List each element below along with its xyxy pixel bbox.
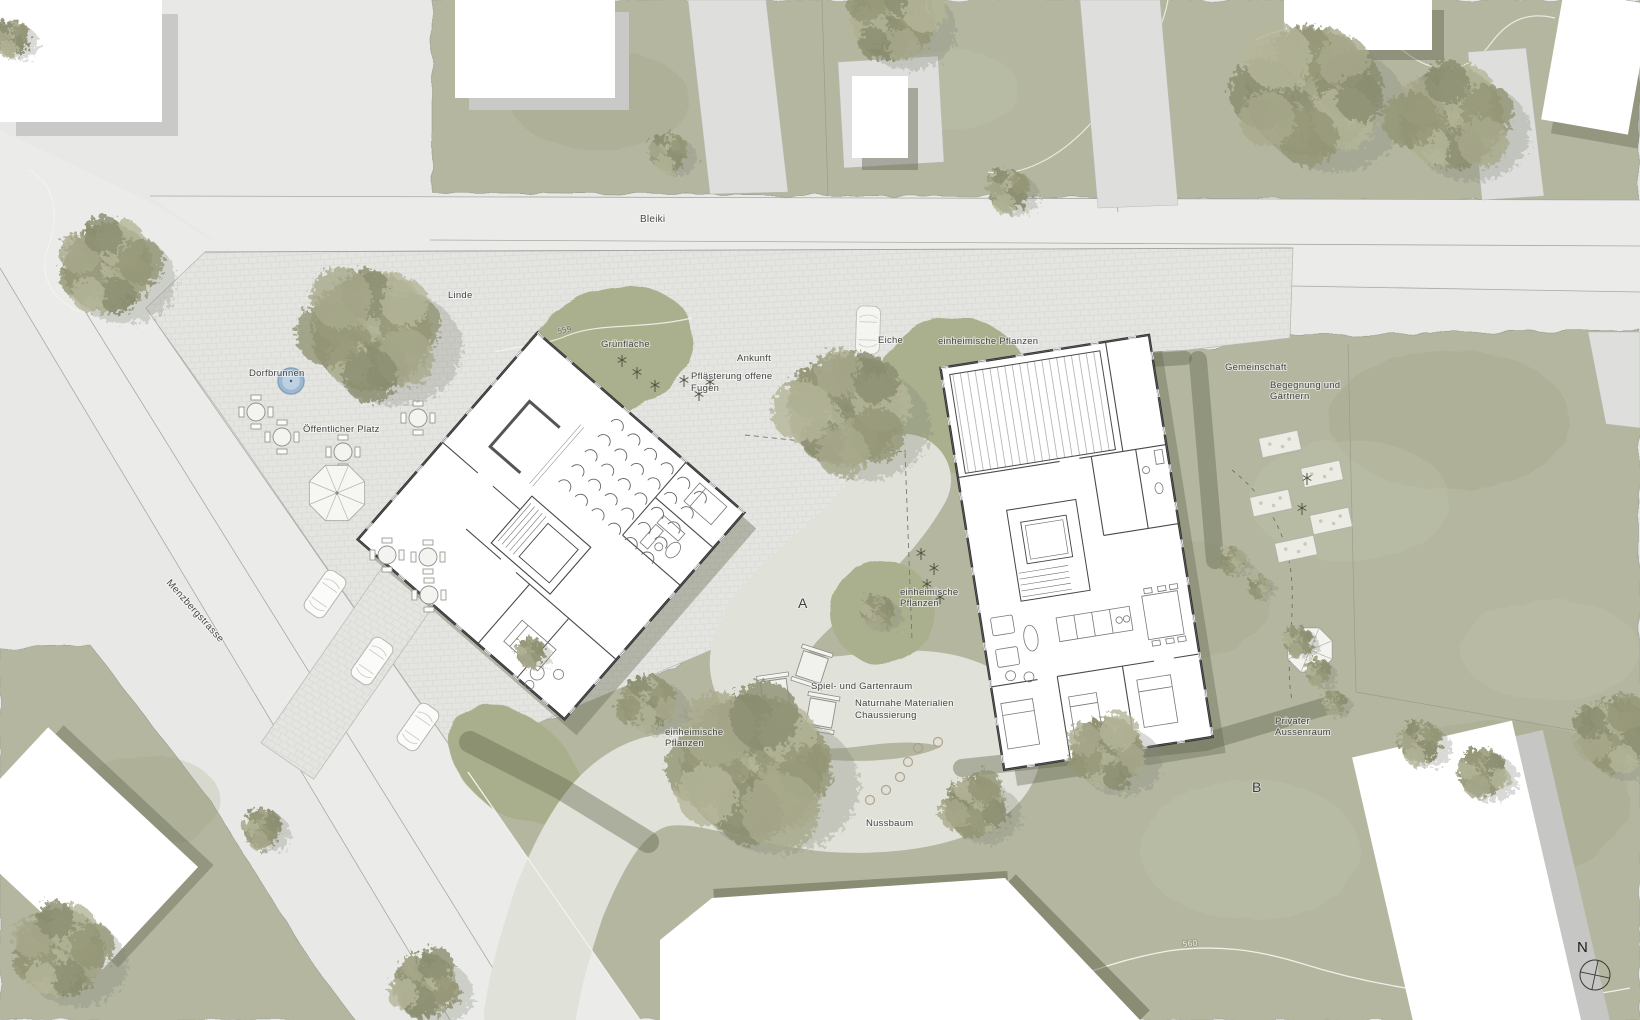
label-privater-2: Aussenraum [1275,727,1331,738]
label-privater-1: Privater [1275,716,1310,727]
site-plan-page: Bleiki Linde 559 Grünfläche Ankunft Pflä… [0,0,1640,1020]
context-building [455,0,615,98]
label-street-bleiki: Bleiki [640,214,665,225]
label-north: N [1577,939,1588,956]
label-einheimische-nord: einheimische Pflanzen [938,336,1038,347]
label-begegnung-2: Gärtnern [1270,391,1310,402]
stair-core [1007,499,1091,601]
context-building [852,76,908,158]
label-pflaesterung-2: Fugen [691,383,719,394]
label-begegnung-1: Begegnung und [1270,380,1340,391]
label-contour-560: 560 [1182,937,1198,949]
label-gruenflaeche: Grünfläche [601,339,650,350]
label-tree-eiche: Eiche [878,335,903,346]
label-dorfbrunnen: Dorfbrunnen [249,368,305,379]
label-nussbaum: Nussbaum [866,818,913,829]
label-building-b: B [1252,779,1262,795]
label-einheimische-mitte-2: Pflanzen [900,598,939,609]
label-spiel-gartenraum: Spiel- und Gartenraum [811,681,912,692]
label-ankunft: Ankunft [737,353,771,364]
label-naturnahe-1: Naturnahe Materialien [855,698,954,709]
label-naturnahe-2: Chaussierung [855,710,917,721]
parasol [309,465,364,520]
label-einheimische-sued-2: Pflanzen [665,738,704,749]
site-plan-drawing: Bleiki Linde 559 Grünfläche Ankunft Pflä… [0,0,1640,1020]
label-oeffentlicher-platz: Öffentlicher Platz [303,424,380,435]
label-einheimische-mitte-1: einheimische [900,587,958,598]
label-building-a: A [798,595,808,611]
label-tree-linde: Linde [448,290,473,301]
context-building [0,0,162,122]
label-gemeinschaft: Gemeinschaft [1225,362,1287,373]
car [855,306,881,355]
label-pflaesterung-1: Pflästerung offene [691,371,772,382]
label-einheimische-sued-1: einheimische [665,727,723,738]
